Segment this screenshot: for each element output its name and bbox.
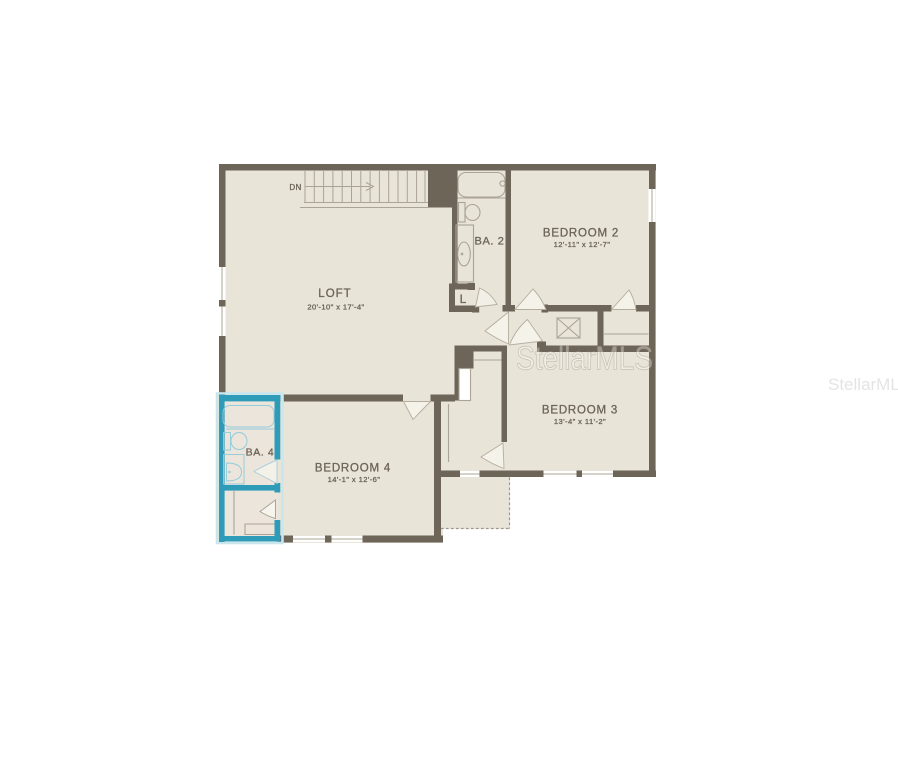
svg-text:BA. 4: BA. 4	[246, 447, 275, 459]
svg-text:13'-4" x 11'-2": 13'-4" x 11'-2"	[554, 417, 606, 426]
svg-text:12'-11" x 12'-7": 12'-11" x 12'-7"	[554, 240, 611, 249]
svg-text:StellarMLS: StellarMLS	[516, 340, 653, 377]
svg-text:BEDROOM 2: BEDROOM 2	[543, 228, 619, 240]
svg-text:DN: DN	[289, 183, 301, 192]
svg-text:14'-1" x 12'-6": 14'-1" x 12'-6"	[328, 475, 381, 484]
svg-text:L: L	[460, 292, 467, 306]
svg-text:BEDROOM 3: BEDROOM 3	[542, 405, 618, 417]
svg-text:BEDROOM 4: BEDROOM 4	[315, 463, 391, 475]
svg-text:LOFT: LOFT	[318, 288, 351, 300]
svg-text:StellarMLS: StellarMLS	[828, 375, 898, 394]
svg-text:BA. 2: BA. 2	[475, 236, 505, 248]
svg-text:20'-10" x 17'-4": 20'-10" x 17'-4"	[307, 303, 364, 312]
